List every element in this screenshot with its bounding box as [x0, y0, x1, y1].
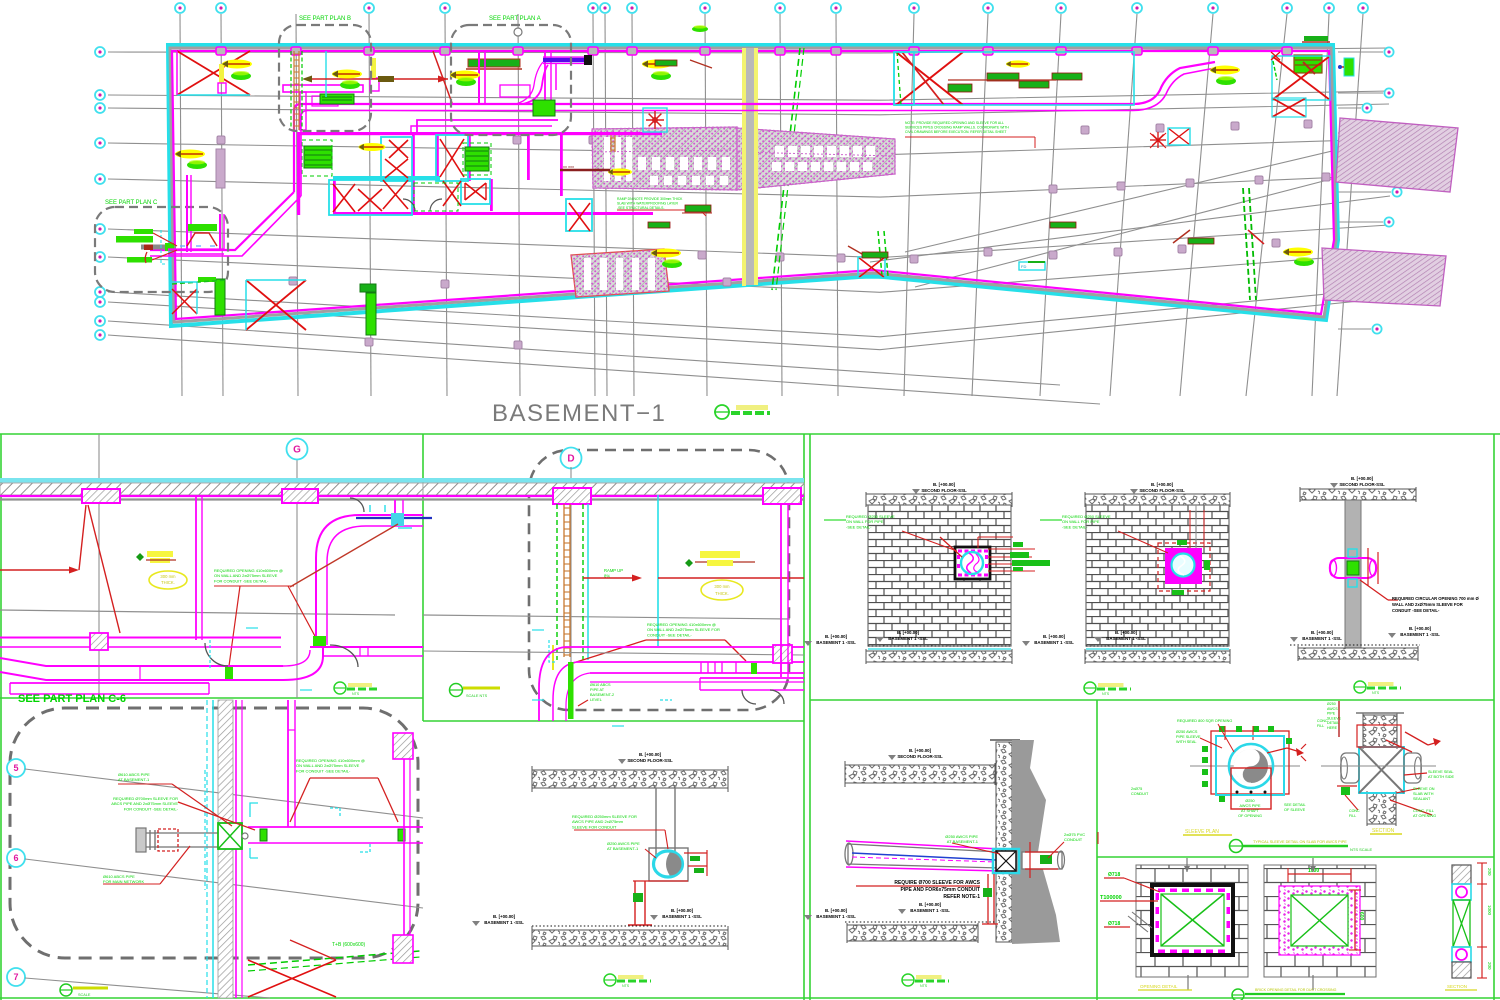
- svg-text:SEE PART PLAN A: SEE PART PLAN A: [489, 16, 541, 22]
- svg-text:xx xxx: xx xxx: [563, 164, 574, 169]
- svg-text:PIPE AT: PIPE AT: [590, 688, 605, 692]
- svg-text:B. [+00.00]: B. [+00.00]: [671, 908, 694, 913]
- svg-text:SLAB WITH: SLAB WITH: [1413, 792, 1434, 796]
- svg-text:RAMP DN NOTE PROVIDE 300mm THI: RAMP DN NOTE PROVIDE 300mm THICK: [617, 197, 683, 201]
- svg-text:SLEEVE PLAN: SLEEVE PLAN: [1185, 829, 1219, 835]
- svg-text:600: 600: [1358, 912, 1364, 921]
- svg-text:SEE PART PLAN C: SEE PART PLAN C: [105, 200, 158, 206]
- svg-text:SLAB WITH WATERPROOFING LAYER: SLAB WITH WATERPROOFING LAYER: [617, 202, 679, 206]
- svg-text:BASEMENT 1 -SSL: BASEMENT 1 -SSL: [1302, 636, 1342, 641]
- svg-text:LEVEL: LEVEL: [590, 698, 602, 702]
- svg-text:AWCS: AWCS: [1327, 707, 1338, 711]
- svg-text:200: 200: [1487, 962, 1492, 970]
- svg-text:FILL: FILL: [1349, 814, 1356, 818]
- svg-text:B. [+00.00]: B. [+00.00]: [933, 482, 956, 487]
- svg-text:REQUIRE Ø700 SLEEVE FOR AWCS: REQUIRE Ø700 SLEEVE FOR AWCS: [894, 880, 980, 886]
- svg-text:CONDUIT -SEE DETAIL-: CONDUIT -SEE DETAIL-: [1392, 608, 1440, 613]
- svg-text:Ø250: Ø250: [1245, 799, 1254, 803]
- svg-text:FILL: FILL: [1317, 724, 1324, 728]
- svg-text:T+B (600x600): T+B (600x600): [332, 942, 366, 948]
- svg-text:2xØ75: 2xØ75: [1131, 787, 1142, 791]
- svg-text:AT BASEMENT-1: AT BASEMENT-1: [607, 846, 639, 851]
- svg-text:SECOND FLOOR-SSL: SECOND FLOOR-SSL: [1339, 482, 1385, 487]
- svg-text:B. [+00.00]: B. [+00.00]: [825, 908, 848, 913]
- svg-text:SECOND FLOOR-SSL: SECOND FLOOR-SSL: [627, 758, 673, 763]
- svg-text:BASEMENT 1 -SSL: BASEMENT 1 -SSL: [816, 640, 856, 645]
- svg-text:200: 200: [1487, 868, 1492, 876]
- svg-text:OPENING DETAIL: OPENING DETAIL: [1140, 984, 1178, 989]
- svg-text:FOR MAIN NETWORK: FOR MAIN NETWORK: [103, 879, 144, 884]
- svg-text:B. [+00.00]: B. [+00.00]: [493, 914, 516, 919]
- svg-text:NTS SCALE: NTS SCALE: [1350, 847, 1373, 852]
- svg-text:SCALE NTS: SCALE NTS: [466, 694, 488, 698]
- svg-text:OF SLEEVE: OF SLEEVE: [1284, 808, 1306, 812]
- svg-text:SLEEVE SEAL: SLEEVE SEAL: [1428, 770, 1454, 774]
- svg-text:SECTION: SECTION: [1372, 828, 1395, 834]
- svg-text:NTS: NTS: [1102, 692, 1110, 696]
- svg-text:REQUIRED 800 SQR OPENING: REQUIRED 800 SQR OPENING: [1177, 719, 1232, 723]
- svg-text:AT SHAFT: AT SHAFT: [1241, 809, 1260, 813]
- svg-text:B. [+00.00]: B. [+00.00]: [1409, 626, 1432, 631]
- svg-text:Ø250 AWCS: Ø250 AWCS: [1176, 730, 1198, 734]
- svg-text:SCALE: SCALE: [78, 993, 91, 997]
- svg-text:BASEMENT 1 -SSL: BASEMENT 1 -SSL: [1106, 636, 1146, 641]
- svg-text:NOTE: PROVIDE REQUIRED OPENING: NOTE: PROVIDE REQUIRED OPENING AND SLEEV…: [905, 121, 1004, 125]
- svg-text:NTS: NTS: [920, 984, 928, 988]
- svg-text:THICK.: THICK.: [715, 591, 729, 596]
- svg-text:FOR CONDUIT -SEE DETAIL-: FOR CONDUIT -SEE DETAIL-: [296, 768, 351, 773]
- svg-text:THICK.: THICK.: [161, 580, 175, 585]
- svg-text:REFER NOTE-1: REFER NOTE-1: [943, 894, 980, 900]
- svg-text:CONC: CONC: [1317, 719, 1328, 723]
- svg-text:BASEMENT−1: BASEMENT−1: [492, 400, 666, 427]
- svg-text:SEE DETAIL: SEE DETAIL: [1284, 803, 1306, 807]
- svg-text:Ø250: Ø250: [1327, 702, 1336, 706]
- svg-text:AT OPENING: AT OPENING: [1413, 814, 1436, 818]
- svg-text:-SEE DETAIL-: -SEE DETAIL-: [1062, 524, 1088, 529]
- svg-text:Ø718: Ø718: [1108, 872, 1120, 878]
- svg-text:HERE: HERE: [1327, 726, 1338, 730]
- svg-text:RAMP UP: RAMP UP: [604, 568, 623, 573]
- svg-text:B. [+00.00]: B. [+00.00]: [1351, 476, 1374, 481]
- svg-text:PIPE: PIPE: [1327, 712, 1336, 716]
- svg-text:B. [+00.00]: B. [+00.00]: [909, 748, 932, 753]
- svg-text:SECTION: SECTION: [1447, 984, 1467, 989]
- svg-text:BASEMENT 1 -SSL: BASEMENT 1 -SSL: [662, 914, 702, 919]
- svg-text:FOR CONDUIT -SEE DETAIL-: FOR CONDUIT -SEE DETAIL-: [124, 806, 179, 811]
- svg-text:CONDUIT: CONDUIT: [1064, 837, 1083, 842]
- svg-text:PIPE SLEEVE: PIPE SLEEVE: [1176, 735, 1201, 739]
- svg-text:SERVICES PIPES CROSSING RAMP W: SERVICES PIPES CROSSING RAMP WALLS. COOR…: [905, 126, 1009, 130]
- svg-text:BASEMENT 1 -SSL: BASEMENT 1 -SSL: [484, 920, 524, 925]
- svg-text:SEE PART PLAN B: SEE PART PLAN B: [299, 16, 351, 22]
- svg-text:OF OPENING: OF OPENING: [1238, 814, 1262, 818]
- svg-text:SECOND FLOOR-SSL: SECOND FLOOR-SSL: [897, 754, 943, 759]
- svg-text:7: 7: [13, 972, 18, 982]
- svg-text:5: 5: [13, 763, 18, 773]
- svg-text:DETAIL: DETAIL: [1327, 721, 1339, 725]
- svg-text:BASEMENT-2: BASEMENT-2: [590, 693, 614, 697]
- svg-text:SLEEVE ON: SLEEVE ON: [1413, 787, 1435, 791]
- svg-text:B. [+00.00]: B. [+00.00]: [639, 752, 662, 757]
- svg-text:T100000: T100000: [1100, 895, 1122, 901]
- svg-text:FOR CONDUIT -SEE DETAIL-: FOR CONDUIT -SEE DETAIL-: [214, 578, 269, 583]
- svg-text:B. [+00.00]: B. [+00.00]: [1043, 634, 1066, 639]
- svg-text:BASEMENT 1 -SSL: BASEMENT 1 -SSL: [888, 636, 928, 641]
- svg-text:B. [+00.00]: B. [+00.00]: [919, 902, 942, 907]
- svg-text:CIVIL DRAWINGS BEFORE EXECUTIO: CIVIL DRAWINGS BEFORE EXECUTION. REFER D…: [905, 130, 1006, 134]
- svg-text:NTS: NTS: [352, 692, 360, 696]
- svg-text:CONDUIT: CONDUIT: [1131, 792, 1149, 796]
- svg-text:BASEMENT 1 -SSL: BASEMENT 1 -SSL: [816, 914, 856, 919]
- svg-text:300 mm: 300 mm: [160, 574, 176, 579]
- svg-text:NTS: NTS: [1372, 691, 1380, 695]
- svg-text:BASEMENT 1 -SSL: BASEMENT 1 -SSL: [910, 908, 950, 913]
- svg-text:SECOND FLOOR-SSL: SECOND FLOOR-SSL: [921, 488, 967, 493]
- svg-text:AT BOTH SIDE: AT BOTH SIDE: [1428, 775, 1454, 779]
- svg-text:G: G: [293, 445, 301, 456]
- svg-text:TYPICAL SLEEVE DETAIL ON SLAB: TYPICAL SLEEVE DETAIL ON SLAB FOR AWCS P…: [1253, 840, 1347, 844]
- svg-text:SECOND FLOOR-SSL: SECOND FLOOR-SSL: [1139, 488, 1185, 493]
- svg-text:Ø718: Ø718: [1108, 921, 1120, 927]
- svg-text:AT BASEMENT-1: AT BASEMENT-1: [947, 839, 979, 844]
- svg-text:300 mm: 300 mm: [714, 584, 730, 589]
- svg-text:6: 6: [13, 853, 18, 863]
- svg-text:-SEE DETAIL-: -SEE DETAIL-: [846, 524, 872, 529]
- svg-text:CONDUIT -SEE DETAIL-: CONDUIT -SEE DETAIL-: [647, 632, 692, 637]
- svg-text:B. [+00.00]: B. [+00.00]: [1115, 630, 1138, 635]
- svg-text:BRICK OPENING DETAIL FOR DUCT: BRICK OPENING DETAIL FOR DUCT CROSSING: [1255, 988, 1337, 992]
- svg-text:BASEMENT 1 -SSL: BASEMENT 1 -SSL: [1034, 640, 1074, 645]
- svg-text:AT BASEMENT-1: AT BASEMENT-1: [118, 777, 150, 782]
- svg-text:1000: 1000: [1487, 905, 1492, 916]
- svg-text:CONC. FILL: CONC. FILL: [1413, 809, 1434, 813]
- svg-text:B. [+00.00]: B. [+00.00]: [825, 634, 848, 639]
- svg-text:B. [+00.00]: B. [+00.00]: [897, 630, 920, 635]
- svg-text:BASEMENT 1 -SSL: BASEMENT 1 -SSL: [1400, 632, 1440, 637]
- svg-text:D: D: [567, 454, 574, 465]
- svg-text:CONC: CONC: [1349, 809, 1360, 813]
- svg-text:AWCS PIPE: AWCS PIPE: [1240, 804, 1261, 808]
- svg-text:Ø610 ABCS: Ø610 ABCS: [590, 683, 611, 687]
- svg-text:REQUIRED CIRCULAR OPENING 700: REQUIRED CIRCULAR OPENING 700 mm Ø: [1392, 596, 1480, 601]
- svg-text:PIPE AND FOR6x75mm CONDUIT: PIPE AND FOR6x75mm CONDUIT: [900, 887, 980, 893]
- svg-text:SEALANT: SEALANT: [1413, 797, 1431, 801]
- svg-text:WALL AND 2xØ75mm SLEEVE FOR: WALL AND 2xØ75mm SLEEVE FOR: [1392, 602, 1463, 607]
- svg-text:FD: FD: [1021, 264, 1026, 269]
- svg-text:SLEEVE FOR CONDUIT: SLEEVE FOR CONDUIT: [572, 824, 617, 829]
- svg-text:SEE PART PLAN C-6: SEE PART PLAN C-6: [18, 693, 126, 705]
- svg-text:NTS: NTS: [622, 984, 630, 988]
- svg-text:B. [+00.00]: B. [+00.00]: [1311, 630, 1334, 635]
- svg-text:WITH SEAL: WITH SEAL: [1176, 740, 1196, 744]
- svg-text:B. [+00.00]: B. [+00.00]: [1151, 482, 1174, 487]
